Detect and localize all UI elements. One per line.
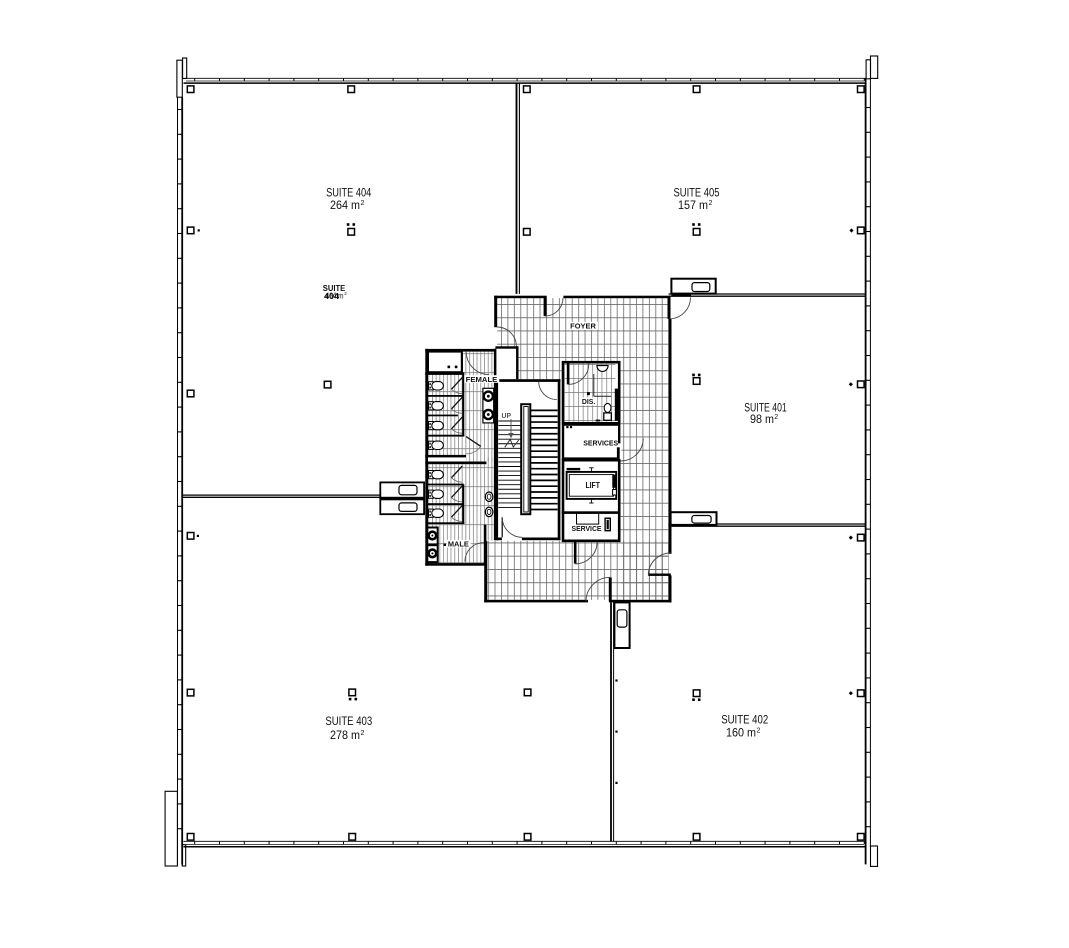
svg-text:464 m: 464 m <box>326 291 344 300</box>
svg-text:2: 2 <box>361 730 365 737</box>
svg-text:2: 2 <box>757 728 761 735</box>
svg-text:SUITE 404: SUITE 404 <box>326 187 372 200</box>
svg-text:DIS.: DIS. <box>582 399 595 406</box>
svg-text:LIFT: LIFT <box>585 481 600 490</box>
svg-text:2: 2 <box>361 200 365 207</box>
svg-text:2: 2 <box>774 414 778 421</box>
svg-text:98 m: 98 m <box>750 413 774 426</box>
svg-text:FOYER: FOYER <box>570 322 596 331</box>
svg-text:2: 2 <box>709 200 713 207</box>
svg-text:160 m: 160 m <box>726 727 756 740</box>
svg-text:157 m: 157 m <box>678 199 708 212</box>
svg-text:278 m: 278 m <box>330 729 360 742</box>
svg-text:SERVICES: SERVICES <box>583 438 618 447</box>
svg-text:SUITE 403: SUITE 403 <box>325 715 372 728</box>
svg-text:SUITE 405: SUITE 405 <box>674 187 720 200</box>
svg-text:SERVICE: SERVICE <box>572 526 602 533</box>
svg-text:SUITE 402: SUITE 402 <box>721 713 768 726</box>
svg-text:MALE: MALE <box>448 541 469 548</box>
svg-text:264 m: 264 m <box>330 199 360 212</box>
svg-text:UP: UP <box>502 413 512 420</box>
svg-text:FEMALE: FEMALE <box>466 377 498 384</box>
